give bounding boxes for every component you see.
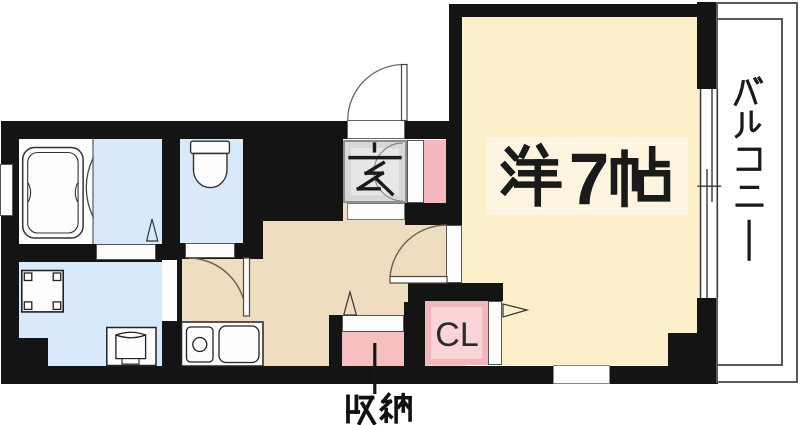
svg-text:CL: CL <box>435 316 478 354</box>
svg-text:7: 7 <box>569 139 610 220</box>
